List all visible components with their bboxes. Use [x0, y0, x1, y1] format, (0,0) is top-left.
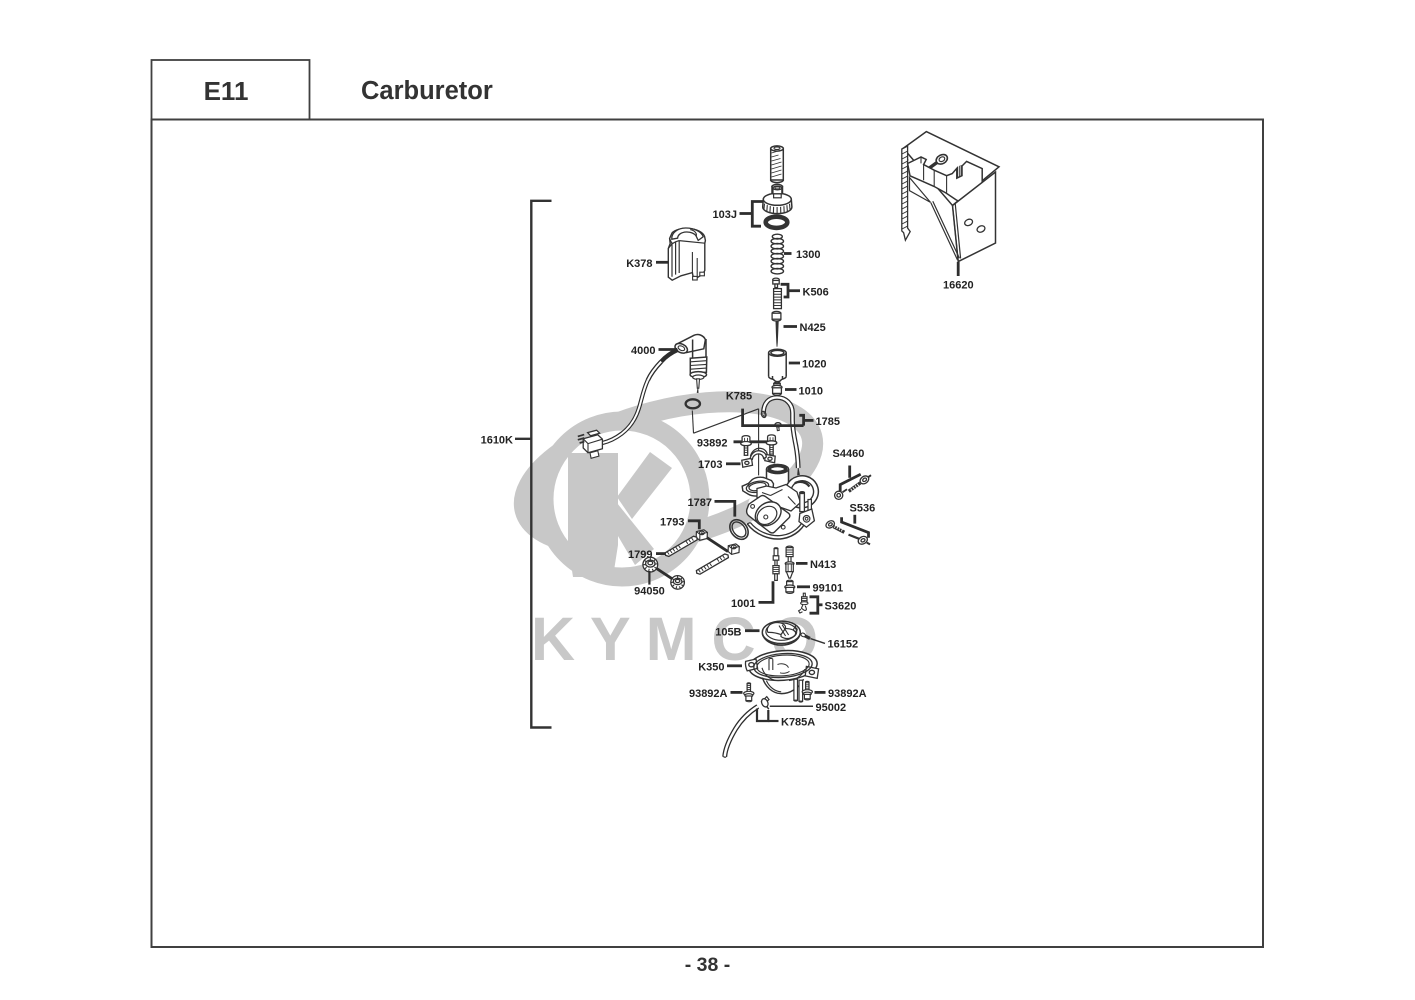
svg-text:K378: K378: [626, 258, 652, 270]
svg-text:S3620: S3620: [825, 600, 857, 612]
svg-text:N413: N413: [810, 559, 836, 571]
svg-text:16620: 16620: [943, 280, 974, 292]
svg-text:93892: 93892: [697, 437, 728, 449]
svg-text:1610K: 1610K: [481, 435, 513, 447]
svg-text:1793: 1793: [660, 516, 684, 528]
svg-text:1785: 1785: [816, 416, 840, 428]
svg-text:16152: 16152: [828, 638, 859, 650]
svg-text:Carburetor: Carburetor: [361, 77, 493, 105]
svg-text:105B: 105B: [715, 626, 741, 638]
svg-text:S4460: S4460: [833, 448, 865, 460]
svg-text:E11: E11: [204, 76, 249, 106]
svg-text:K506: K506: [803, 286, 829, 298]
svg-text:N425: N425: [800, 322, 826, 334]
svg-text:95002: 95002: [816, 702, 847, 714]
svg-text:4000: 4000: [631, 345, 655, 357]
svg-text:K350: K350: [698, 661, 724, 673]
svg-text:1010: 1010: [799, 385, 823, 397]
svg-text:99101: 99101: [813, 582, 844, 594]
svg-text:94050: 94050: [634, 586, 665, 598]
svg-text:103J: 103J: [713, 209, 737, 221]
svg-text:- 38 -: - 38 -: [685, 954, 731, 976]
svg-text:93892A: 93892A: [689, 688, 728, 700]
svg-text:1001: 1001: [731, 598, 755, 610]
svg-text:93892A: 93892A: [828, 688, 867, 700]
svg-text:1300: 1300: [796, 249, 820, 261]
svg-text:K785A: K785A: [781, 716, 815, 728]
svg-text:S536: S536: [850, 502, 876, 514]
svg-text:1703: 1703: [698, 459, 722, 471]
svg-text:1020: 1020: [802, 359, 826, 371]
svg-text:K785: K785: [726, 391, 752, 403]
svg-text:1787: 1787: [688, 497, 712, 509]
